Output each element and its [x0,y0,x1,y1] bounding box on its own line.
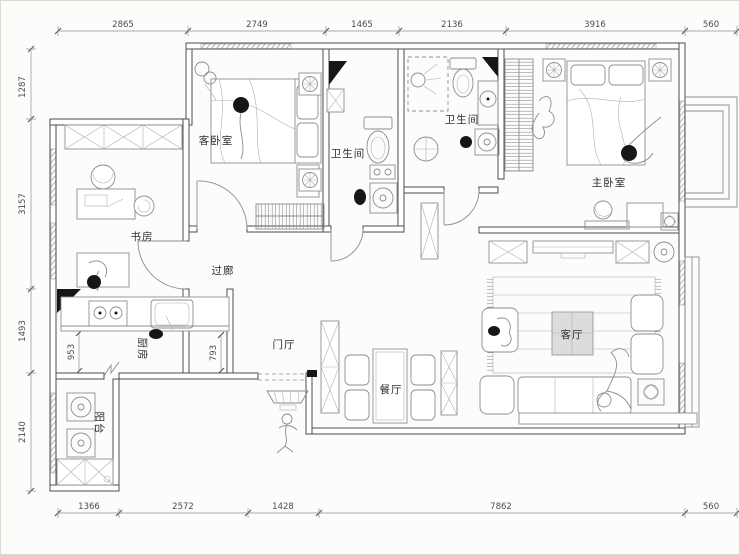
living-window-sill [685,257,699,427]
study-stool [134,196,154,216]
window-living-1 [680,261,685,305]
label-living: 客厅 [561,328,584,341]
dining-chair [411,390,435,420]
armchair-right-1 [631,295,663,331]
label-master-bedroom: 主卧室 [592,176,627,189]
dim-top-2: 2749 [246,20,268,30]
figure-entry [277,414,297,453]
study-chair [91,165,115,189]
label-bathroom-a: 卫生间 [331,147,366,160]
dim-bottom-4: 7862 [490,502,512,512]
guest-wardrobe [256,204,324,229]
bay-window [685,97,737,207]
armchair-right-2 [631,334,663,374]
shower-area [408,57,448,111]
figure-closet [532,96,554,138]
dim-top-5: 3916 [584,20,606,30]
dim-kitchen-depth: 953 [67,344,77,360]
master-furniture [505,59,678,230]
dining-chair [345,355,369,385]
dim-top-6: 560 [703,20,719,30]
label-guest-bedroom: 客卧室 [199,134,234,147]
dim-left-3: 1493 [18,320,28,342]
figure-master-bed [621,145,637,161]
door-guest-bedroom [197,181,247,229]
figure-armchair [488,326,500,336]
floor-plan-canvas: 2865 2749 1465 2136 3916 560 1287 3157 1… [1,1,740,555]
dining-chair [411,355,435,385]
dim-left-1: 1287 [18,76,28,98]
living-side-table [638,379,664,405]
label-balcony: 阳台 [93,412,106,435]
window-master-bedroom [546,44,656,49]
window-guest-bedroom [201,44,291,49]
dim-entry-depth: 793 [209,345,219,361]
shower-head-icon [411,73,425,87]
figure-bath-a [354,189,366,205]
dim-top-3: 1465 [351,20,373,30]
dim-top-1: 2865 [112,20,134,30]
window-study-2 [51,223,56,279]
sofa-back-ledge [519,413,697,424]
dim-bottom-1: 1366 [78,502,100,512]
dimension-chain-left: 1287 3157 1493 2140 [18,46,36,494]
figure-guest-bed [233,97,249,113]
entry-exterior [267,391,308,453]
fan-living-icon [654,242,674,262]
label-study: 书房 [131,230,154,243]
dining-chair [345,390,369,420]
bathroom-a-furniture [327,61,397,213]
entry-canopy [267,391,308,403]
dimension-chain-bottom: 1366 2572 1428 7862 560 [55,502,740,518]
label-dining: 餐厅 [380,383,403,396]
label-kitchen: 厨房 [136,338,149,361]
kitchen-furniture [57,289,229,339]
window-balcony [51,393,56,473]
label-entry: 门厅 [273,338,296,351]
dim-bottom-3: 1428 [272,502,294,512]
column-bath-a [329,61,347,85]
window-study-1 [51,149,56,205]
dim-left-2: 3157 [18,193,28,215]
toilet-b [450,58,476,69]
window-living-2 [680,363,685,419]
label-bathroom-b: 卫生间 [445,113,480,126]
floor-plan-page: 2865 2749 1465 2136 3916 560 1287 3157 1… [0,0,740,555]
balcony-furniture [57,393,113,485]
figure-bath-b [460,136,472,148]
living-furniture [480,241,697,424]
balcony-door-break [104,362,119,376]
figure-study [87,275,101,289]
door-bathroom-a [331,229,363,261]
column-bath-b [482,57,498,77]
dim-left-4: 2140 [18,421,28,443]
study-furniture [65,125,182,291]
study-seat [77,253,129,287]
dimension-chain-top: 2865 2749 1465 2136 3916 560 [55,20,740,36]
label-corridor: 过廊 [212,264,235,277]
sofa [518,377,631,414]
window-master-bay [680,101,685,201]
study-desk [77,189,135,219]
dim-bottom-2: 2572 [172,502,194,512]
dim-top-4: 2136 [441,20,463,30]
master-desk [627,203,663,227]
armchair-left [482,308,518,352]
faucet-dot [149,329,163,339]
dim-bottom-5: 560 [703,502,719,512]
armchair-bottom-left [480,376,514,414]
door-study [138,241,186,289]
bathroom-b-furniture [408,57,499,161]
door-master-bedroom [444,190,479,225]
plant [195,62,209,76]
toilet-a [364,117,392,129]
